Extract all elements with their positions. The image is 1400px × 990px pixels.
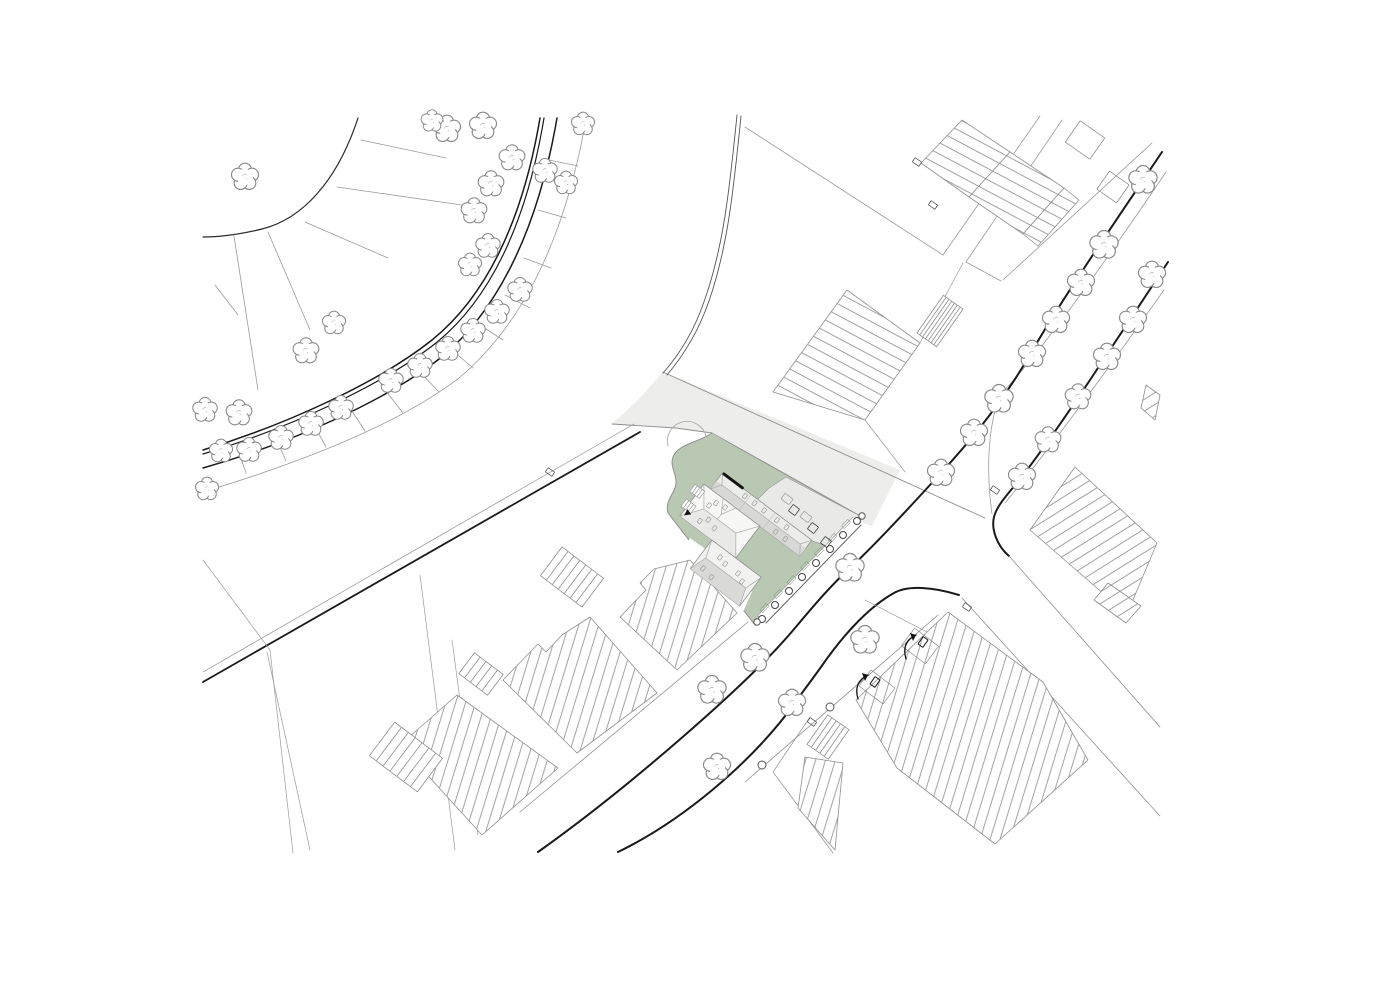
bollard xyxy=(859,513,865,519)
fence-post xyxy=(813,560,820,567)
fence-post xyxy=(799,574,806,581)
bollard xyxy=(826,703,834,711)
fence-post xyxy=(772,602,779,609)
site-plan-drawing xyxy=(0,0,1400,990)
fence-post xyxy=(840,532,847,539)
bollard xyxy=(758,761,766,769)
bollard xyxy=(754,619,760,625)
site-plan-page: Architectural site plan drawing xyxy=(0,0,1400,990)
fence-post xyxy=(786,588,793,595)
